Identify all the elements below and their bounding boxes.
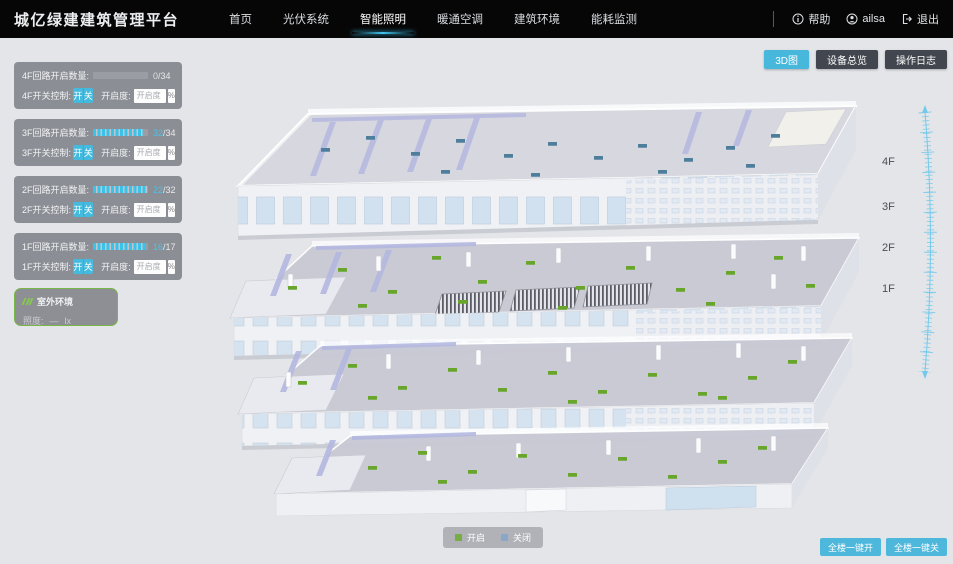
legend-off-label: 关闭 [513, 531, 531, 544]
openness-label: 开启度: [101, 260, 131, 273]
logout-icon [901, 13, 913, 25]
switch-on-button[interactable]: 开 [73, 202, 83, 217]
floor-label-1f[interactable]: 1F [882, 283, 895, 295]
nav-item-building-env[interactable]: 建筑环境 [512, 7, 562, 31]
openness-percent-button[interactable]: % [168, 260, 175, 274]
circuit-count-value: 0/34 [153, 71, 171, 81]
legend-off-swatch [501, 534, 508, 541]
openness-input[interactable] [134, 89, 166, 103]
main-nav: 首页 光伏系统 智能照明 暖通空调 建筑环境 能耗监测 [227, 7, 639, 31]
nav-item-home[interactable]: 首页 [227, 7, 254, 31]
openness-input[interactable] [134, 260, 166, 274]
help-label: 帮助 [808, 11, 830, 27]
circuit-count-value: 16/17 [153, 242, 176, 252]
circuit-count-label: 1F回路开启数量: [22, 240, 89, 253]
user-name: ailsa [862, 13, 885, 25]
outdoor-env-title: 室外环境 [37, 295, 73, 308]
header-right-group: 帮助 ailsa 退出 [773, 11, 939, 27]
circuit-count-label: 2F回路开启数量: [22, 183, 89, 196]
nav-item-smart-lighting[interactable]: 智能照明 [358, 7, 408, 31]
building-floor-4f[interactable] [238, 101, 856, 240]
building-floor-1f[interactable] [274, 423, 828, 516]
illuminance-value: — [50, 316, 59, 326]
circuit-progress-bar [93, 243, 148, 250]
switch-on-button[interactable]: 开 [73, 259, 83, 274]
illuminance-label: 照度: [23, 314, 44, 327]
openness-input[interactable] [134, 146, 166, 160]
top-header-bar: 城亿绿建建筑管理平台 首页 光伏系统 智能照明 暖通空调 建筑环境 能耗监测 帮… [0, 0, 953, 38]
legend-off: 关闭 [501, 531, 531, 544]
all-on-button[interactable]: 全楼一键开 [820, 538, 881, 556]
switch-on-button[interactable]: 开 [73, 145, 83, 160]
help-button[interactable]: 帮助 [792, 11, 830, 27]
circuit-count-label: 3F回路开启数量: [22, 126, 89, 139]
all-off-button[interactable]: 全楼一键关 [886, 538, 947, 556]
switch-control-label: 2F开关控制: [22, 203, 71, 216]
switch-on-button[interactable]: 开 [73, 88, 83, 103]
circuit-progress-bar [93, 186, 148, 193]
logout-label: 退出 [917, 11, 939, 27]
switch-off-button[interactable]: 关 [84, 259, 94, 274]
outdoor-env-panel: 室外环境 照度: — lx [14, 288, 118, 326]
whole-building-controls: 全楼一键开 全楼一键关 [820, 538, 947, 556]
operation-log-button[interactable]: 操作日志 [885, 50, 947, 69]
switch-control-label: 4F开关控制: [22, 89, 71, 102]
openness-percent-button[interactable]: % [168, 146, 175, 160]
header-divider [773, 11, 774, 27]
openness-input[interactable] [134, 203, 166, 217]
circuit-count-label: 4F回路开启数量: [22, 69, 89, 82]
openness-label: 开启度: [101, 89, 131, 102]
nav-item-pv-system[interactable]: 光伏系统 [281, 7, 331, 31]
circuit-count-value: 32/34 [153, 128, 176, 138]
floor-panel-3f: 3F回路开启数量: 32/34 3F开关控制: 开 关 开启度: % [14, 119, 182, 166]
openness-percent-button[interactable]: % [168, 203, 175, 217]
building-3d-view[interactable] [226, 96, 874, 516]
floor-label-2f[interactable]: 2F [882, 242, 895, 254]
nav-item-energy-monitor[interactable]: 能耗监测 [589, 7, 639, 31]
circuit-progress-bar [93, 72, 148, 79]
switch-off-button[interactable]: 关 [84, 202, 94, 217]
openness-label: 开启度: [101, 203, 131, 216]
switch-off-button[interactable]: 关 [84, 145, 94, 160]
device-overview-button[interactable]: 设备总览 [816, 50, 878, 69]
switch-control-label: 3F开关控制: [22, 146, 71, 159]
floor-label-4f[interactable]: 4F [882, 156, 895, 168]
floor-panel-2f: 2F回路开启数量: 22/32 2F开关控制: 开 关 开启度: % [14, 176, 182, 223]
circuit-count-value: 22/32 [153, 185, 176, 195]
openness-percent-button[interactable]: % [168, 89, 175, 103]
info-icon [792, 13, 804, 25]
view-switch-group: 3D图 设备总览 操作日志 [764, 50, 947, 69]
floor-label-3f[interactable]: 3F [882, 201, 895, 213]
logout-button[interactable]: 退出 [901, 11, 939, 27]
outdoor-env-icon [23, 298, 32, 305]
circuit-progress-bar [93, 129, 148, 136]
floor-ruler-slider[interactable] [908, 104, 946, 380]
lights-legend: 开启 关闭 [443, 527, 543, 548]
switch-off-button[interactable]: 关 [84, 88, 94, 103]
openness-label: 开启度: [101, 146, 131, 159]
floor-panel-1f: 1F回路开启数量: 16/17 1F开关控制: 开 关 开启度: % [14, 233, 182, 280]
user-menu[interactable]: ailsa [846, 13, 885, 25]
legend-on: 开启 [455, 531, 485, 544]
view-3d-button[interactable]: 3D图 [764, 50, 809, 69]
user-icon [846, 13, 858, 25]
floor-panel-4f: 4F回路开启数量: 0/34 4F开关控制: 开 关 开启度: % [14, 62, 182, 109]
illuminance-unit: lx [65, 316, 72, 326]
app-title: 城亿绿建建筑管理平台 [14, 9, 179, 30]
legend-on-label: 开启 [467, 531, 485, 544]
legend-on-swatch [455, 534, 462, 541]
nav-item-hvac[interactable]: 暖通空调 [435, 7, 485, 31]
switch-control-label: 1F开关控制: [22, 260, 71, 273]
